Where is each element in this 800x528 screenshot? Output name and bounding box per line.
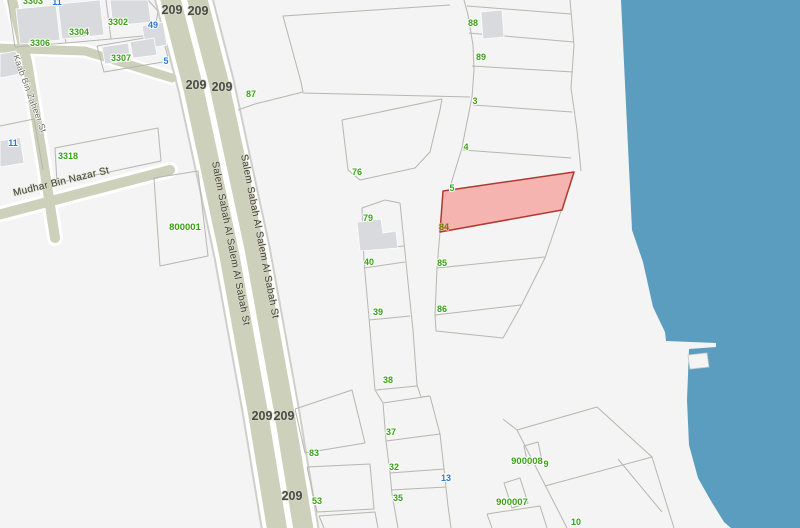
parcel-label-76: 76 — [352, 167, 362, 177]
parcel-label-40: 40 — [364, 257, 374, 267]
parcel-label-800001: 800001 — [169, 222, 201, 233]
parcel-label-3318: 3318 — [58, 151, 78, 161]
parcel-label-5: 5 — [449, 183, 454, 193]
parcel-label-38: 38 — [383, 375, 393, 385]
parcel-label-87: 87 — [246, 89, 256, 99]
parcel-label-89: 89 — [476, 52, 486, 62]
parcel-label-9: 9 — [543, 459, 548, 469]
building — [130, 38, 157, 58]
route-label-209: 209 — [252, 409, 273, 423]
route-label-209: 209 — [282, 489, 303, 503]
parcel-label-3306: 3306 — [30, 38, 50, 48]
pier-dock — [688, 353, 709, 369]
unit-label-11: 11 — [52, 0, 62, 7]
route-label-209: 209 — [274, 409, 295, 423]
unit-label-5: 5 — [163, 56, 168, 66]
parcel-label-85: 85 — [437, 258, 447, 268]
parcel-label-79: 79 — [363, 213, 373, 223]
map-viewport[interactable]: Salem Sabah Al Salem Al Sabah St Salem S… — [0, 0, 800, 528]
parcel-label-83: 83 — [309, 448, 319, 458]
parcel-label-10: 10 — [571, 517, 581, 527]
map-canvas[interactable]: Salem Sabah Al Salem Al Sabah St Salem S… — [0, 0, 800, 528]
parcel-label-3304: 3304 — [69, 27, 89, 37]
parcel-label-53: 53 — [312, 496, 322, 506]
parcel-label-900007: 900007 — [496, 497, 528, 508]
parcel-label-3303: 3303 — [23, 0, 43, 6]
parcel-label-32: 32 — [389, 462, 399, 472]
route-label-209: 209 — [188, 4, 209, 18]
parcel-label-3: 3 — [472, 96, 477, 106]
parcel-label-35: 35 — [393, 493, 403, 503]
unit-label-49: 49 — [148, 20, 158, 30]
unit-label-11: 11 — [8, 138, 18, 148]
parcel-label-39: 39 — [373, 307, 383, 317]
route-label-209: 209 — [186, 78, 207, 92]
parcel-label-84-highlighted: 84 — [439, 222, 449, 232]
parcel-label-88: 88 — [468, 18, 478, 28]
parcel-label-86: 86 — [437, 304, 447, 314]
unit-label-13: 13 — [441, 473, 451, 483]
building — [481, 10, 504, 39]
parcel-label-37: 37 — [386, 427, 396, 437]
route-label-209: 209 — [162, 3, 183, 17]
route-label-209: 209 — [212, 80, 233, 94]
parcel-label-3302: 3302 — [108, 17, 128, 27]
parcel-label-4: 4 — [463, 142, 468, 152]
parcel-label-900008: 900008 — [511, 456, 543, 467]
parcel-label-3307: 3307 — [111, 53, 131, 63]
